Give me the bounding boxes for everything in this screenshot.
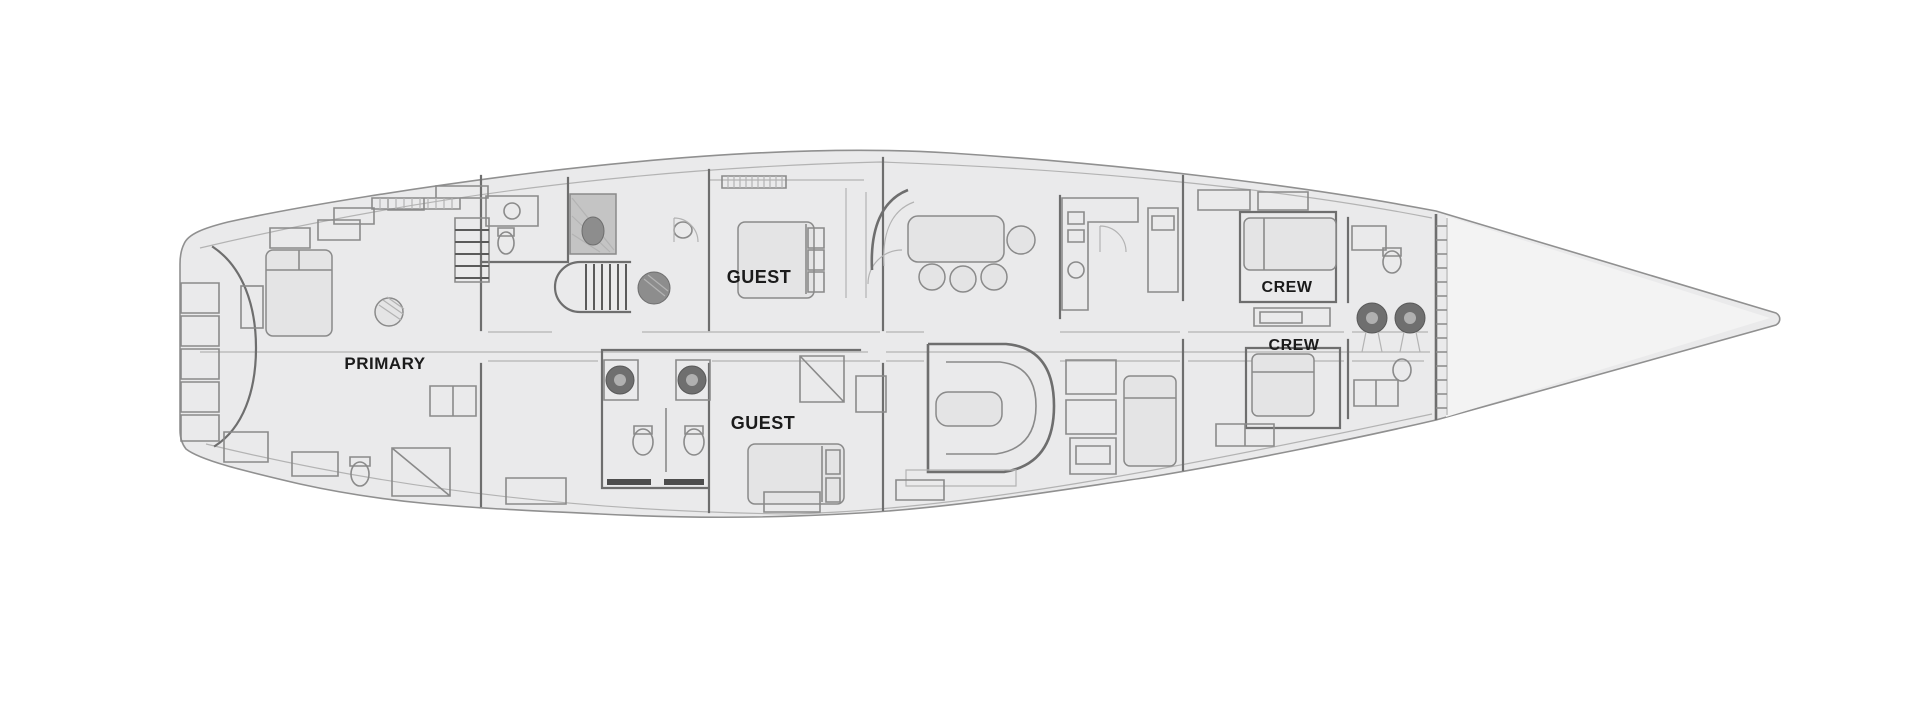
deck-plan-svg: PRIMARY GUEST GUEST CREW CREW	[0, 0, 1920, 707]
guest-cabin-1-label: GUEST	[727, 267, 792, 287]
forepeak	[1446, 216, 1770, 417]
crew-cabin-1-label: CREW	[1262, 279, 1313, 296]
shower-drain	[582, 217, 604, 245]
berth	[1124, 376, 1176, 466]
yacht-deck-plan: PRIMARY GUEST GUEST CREW CREW	[0, 0, 1920, 707]
crew-berth-lower	[1252, 354, 1314, 416]
primary-cabin-label: PRIMARY	[344, 354, 425, 373]
crew-cabin-2-label: CREW	[1269, 337, 1320, 354]
guest-cabin-2-label: GUEST	[731, 413, 796, 433]
crew-berth-upper	[1244, 218, 1336, 270]
sofa-table	[936, 392, 1002, 426]
dining-table	[908, 216, 1004, 262]
